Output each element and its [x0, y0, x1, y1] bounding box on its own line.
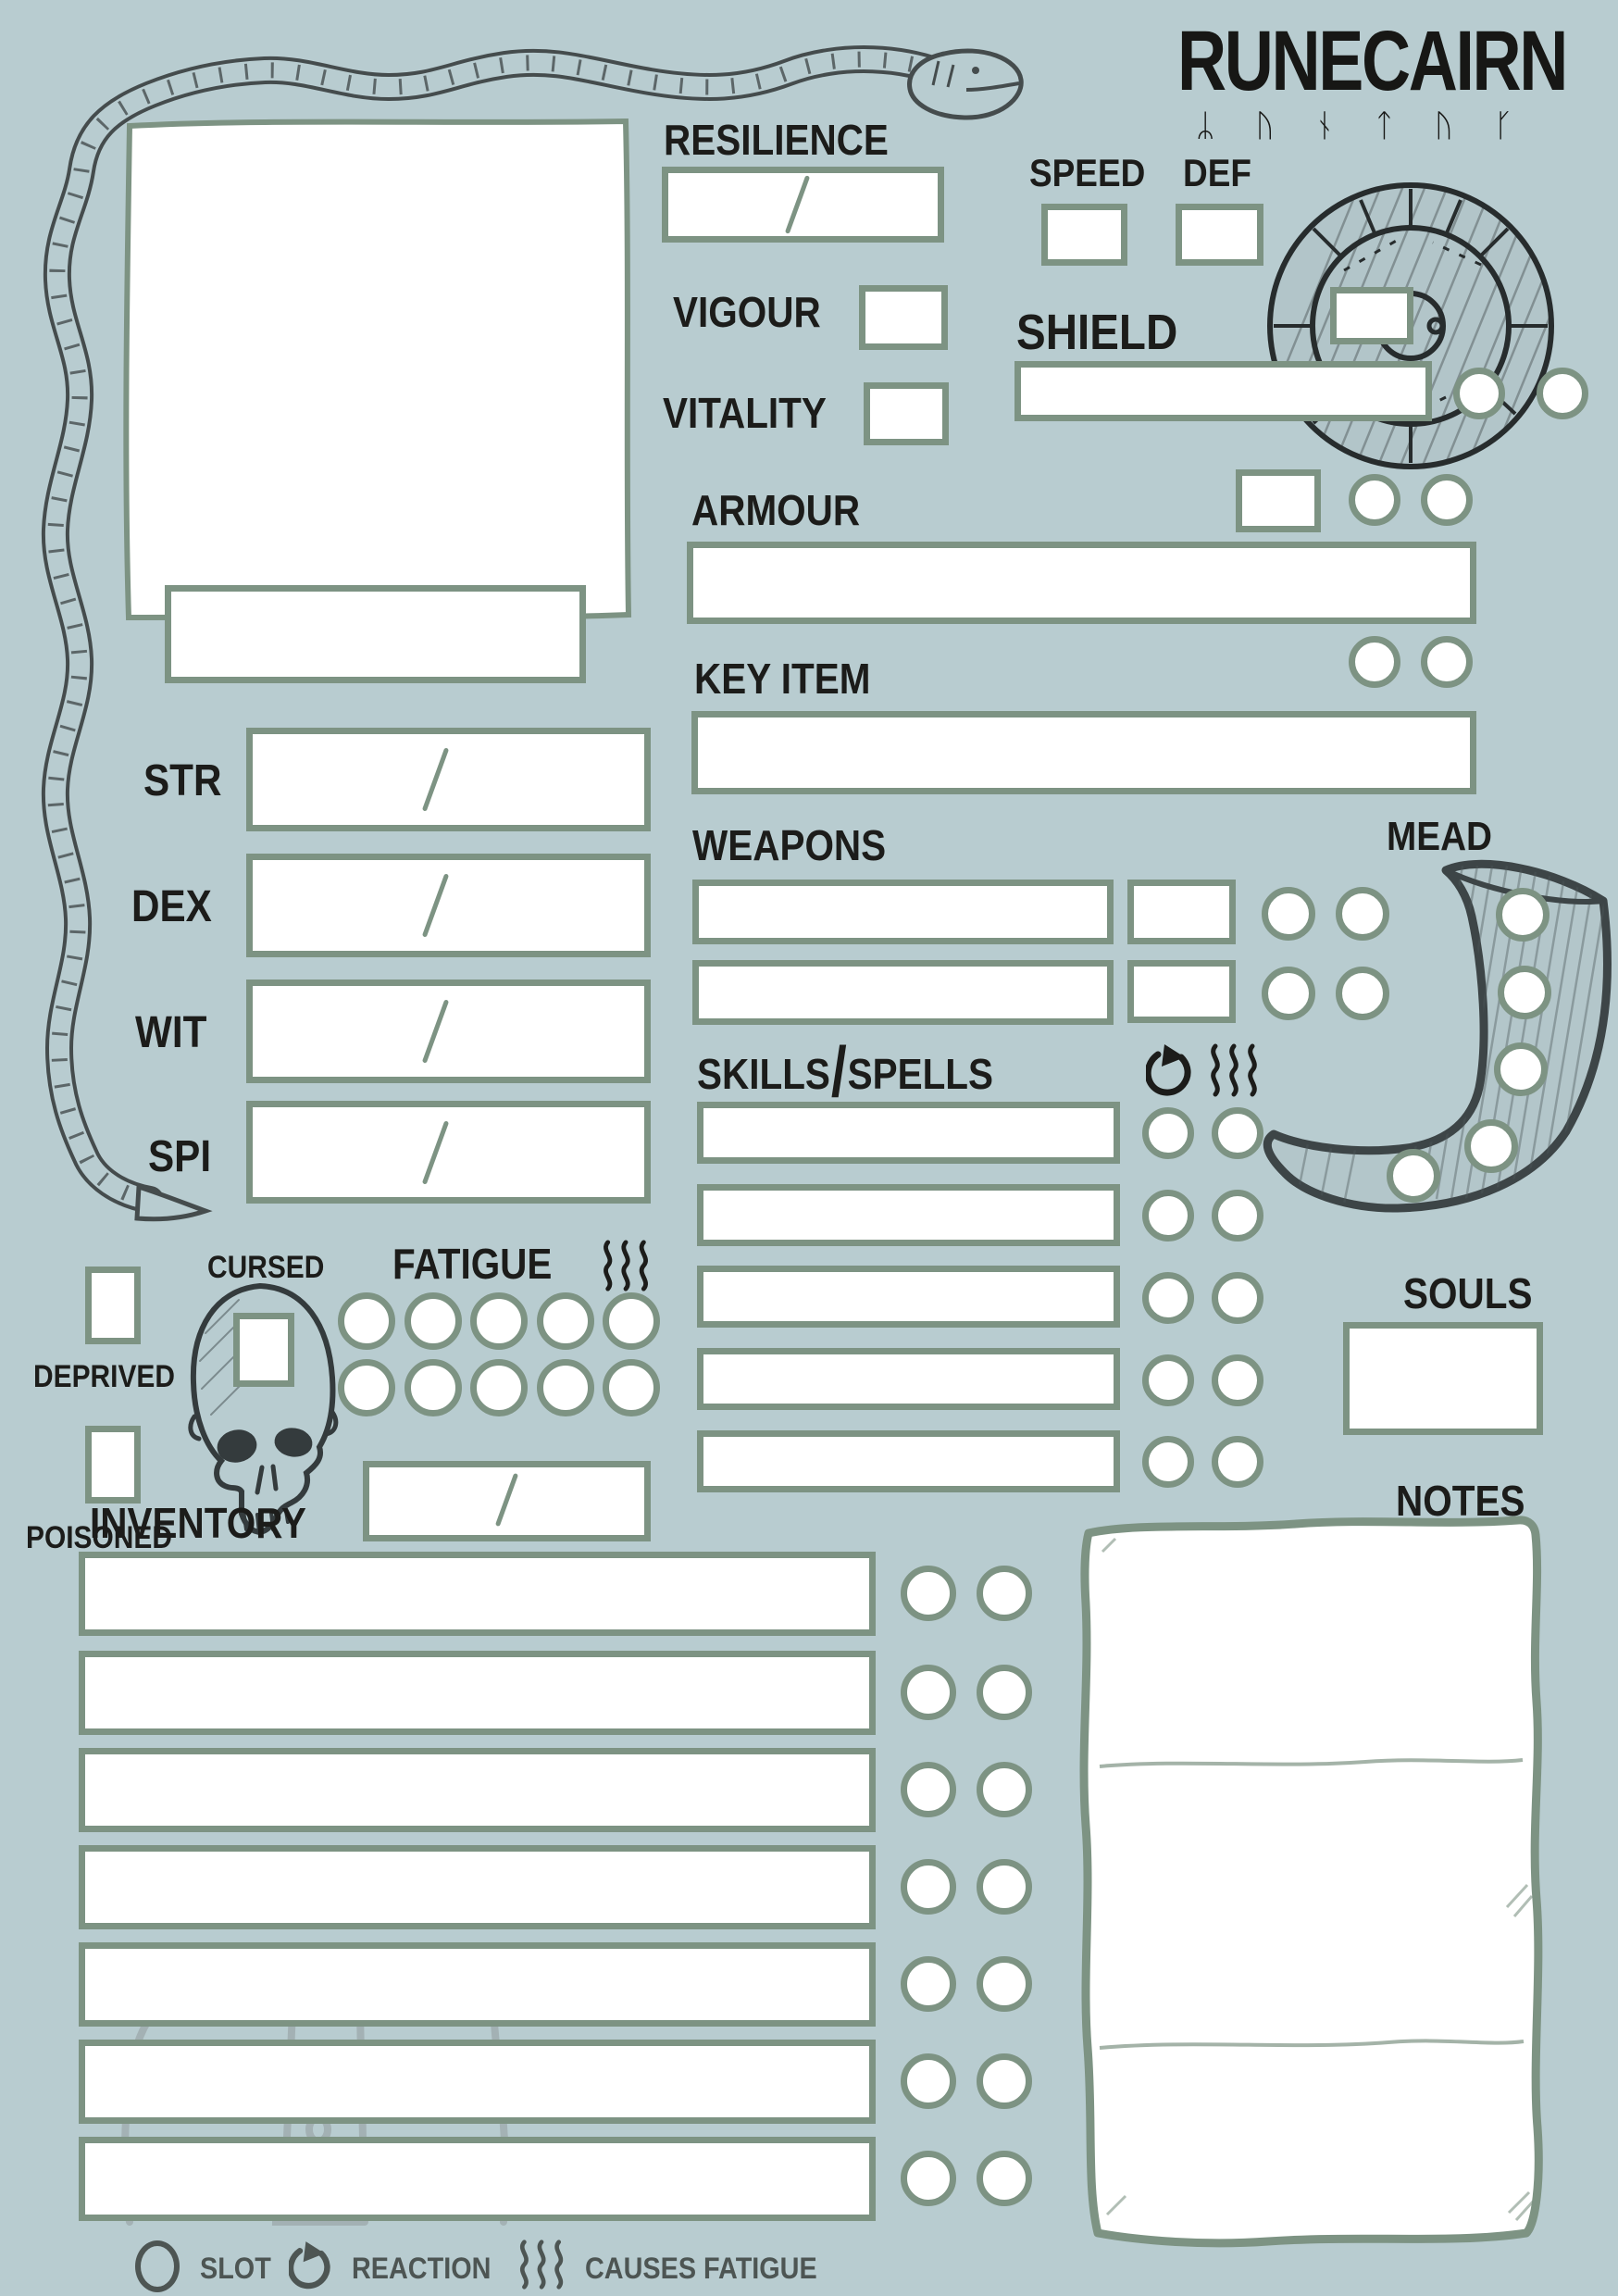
stat-input-dex[interactable]	[246, 854, 651, 957]
inventory-slot-circle[interactable]	[901, 2151, 956, 2206]
skill-reaction-circle[interactable]	[1142, 1354, 1194, 1406]
fatigue-slot-circle[interactable]	[603, 1292, 660, 1350]
key-item-input[interactable]	[691, 711, 1476, 794]
armour-slot-circle[interactable]	[1421, 474, 1473, 526]
souls-label: SOULS	[1403, 1272, 1532, 1315]
fatigue-slot-circle[interactable]	[537, 1359, 594, 1416]
weapon-slot-circle[interactable]	[1336, 887, 1389, 941]
slot-legend-icon	[135, 2240, 180, 2292]
inventory-slot-circle[interactable]	[977, 2053, 1032, 2109]
shield-slot-circle[interactable]	[1537, 368, 1588, 419]
resilience-input[interactable]	[662, 167, 944, 243]
inventory-item-input[interactable]	[79, 1845, 876, 1929]
notes-area[interactable]	[1092, 1537, 1527, 2227]
mead-horn-drawing	[1267, 864, 1611, 1213]
fatigue-slot-circle[interactable]	[470, 1292, 528, 1350]
mead-slot-circle[interactable]	[1464, 1119, 1518, 1173]
souls-input[interactable]	[1343, 1322, 1543, 1435]
inventory-slot-circle[interactable]	[977, 1566, 1032, 1621]
resilience-label: RESILIENCE	[664, 119, 889, 161]
stat-input-str[interactable]	[246, 728, 651, 831]
fatigue-slot-circle[interactable]	[603, 1359, 660, 1416]
inventory-slot-circle[interactable]	[901, 1762, 956, 1817]
reaction-icon	[1146, 1042, 1192, 1096]
skill-reaction-circle[interactable]	[1142, 1107, 1194, 1159]
weapon-name-input[interactable]	[692, 960, 1114, 1025]
shield-label: SHIELD	[1016, 307, 1177, 357]
skill-reaction-circle[interactable]	[1142, 1436, 1194, 1488]
speed-input[interactable]	[1041, 204, 1127, 266]
weapon-name-input[interactable]	[692, 880, 1114, 944]
skill-fatigue-circle[interactable]	[1212, 1354, 1263, 1406]
shield-drawing	[1240, 181, 1618, 477]
inventory-slot-circle[interactable]	[901, 1566, 956, 1621]
fatigue-slot-circle[interactable]	[338, 1359, 395, 1416]
inventory-slot-circle[interactable]	[901, 1956, 956, 2012]
portrait-frame	[126, 121, 629, 618]
inventory-slot-circle[interactable]	[901, 1665, 956, 1720]
inventory-item-input[interactable]	[79, 1942, 876, 2027]
vigour-input[interactable]	[859, 285, 948, 350]
inventory-slot-circle[interactable]	[977, 1859, 1032, 1915]
mead-slot-circle[interactable]	[1498, 966, 1551, 1019]
skill-fatigue-circle[interactable]	[1212, 1107, 1263, 1159]
deprived-label: DEPRIVED	[33, 1361, 175, 1392]
deprived-checkbox[interactable]	[85, 1267, 141, 1344]
fatigue-slot-circle[interactable]	[404, 1359, 462, 1416]
cursed-label: CURSED	[207, 1252, 324, 1283]
reaction-icon	[289, 2239, 331, 2290]
weapon-slot-circle[interactable]	[1262, 967, 1315, 1020]
skill-fatigue-circle[interactable]	[1212, 1190, 1263, 1242]
skill-name-input[interactable]	[697, 1102, 1120, 1164]
armour-def-input[interactable]	[1236, 469, 1321, 532]
inventory-slot-circle[interactable]	[977, 1665, 1032, 1720]
skills-slash: /	[831, 1037, 847, 1107]
inventory-slot-circle[interactable]	[901, 2053, 956, 2109]
key-item-label: KEY ITEM	[694, 657, 870, 700]
weapon-damage-input[interactable]	[1127, 880, 1236, 944]
skill-name-input[interactable]	[697, 1266, 1120, 1328]
mead-slot-circle[interactable]	[1387, 1149, 1440, 1203]
weapon-slot-circle[interactable]	[1262, 887, 1315, 941]
weapon-damage-input[interactable]	[1127, 960, 1236, 1023]
stat-input-wit[interactable]	[246, 980, 651, 1083]
key-item-slot-circle[interactable]	[1421, 636, 1473, 688]
vitality-input[interactable]	[864, 382, 949, 445]
inventory-item-input[interactable]	[79, 1748, 876, 1832]
mead-slot-circle[interactable]	[1496, 888, 1550, 942]
armour-name-input[interactable]	[687, 542, 1476, 624]
shield-slot-circle[interactable]	[1453, 368, 1505, 419]
character-sheet: RUNECAIRN ᛦᚢᚾᛏᚢᚴ RESILIENCE SPEED DEF VI…	[0, 0, 1618, 2296]
skill-reaction-circle[interactable]	[1142, 1190, 1194, 1242]
stat-input-spi[interactable]	[246, 1101, 651, 1204]
inventory-label: INVENTORY	[90, 1502, 306, 1544]
inventory-item-input[interactable]	[79, 1552, 876, 1636]
inventory-slot-circle[interactable]	[977, 2151, 1032, 2206]
skill-fatigue-circle[interactable]	[1212, 1436, 1263, 1488]
causes-fatigue-icon	[598, 1239, 655, 1292]
stat-label-wit: WIT	[135, 1011, 206, 1055]
shield-def-input[interactable]	[1330, 287, 1413, 344]
skills-spells-label: SKILLS/SPELLS	[697, 1035, 993, 1099]
skill-reaction-circle[interactable]	[1142, 1272, 1194, 1324]
speed-label: SPEED	[1029, 154, 1145, 193]
causes-fatigue-icon	[515, 2239, 570, 2290]
logo-runes: ᛦᚢᚾᛏᚢᚴ	[1196, 107, 1553, 144]
def-input[interactable]	[1176, 204, 1263, 266]
skill-name-input[interactable]	[697, 1184, 1120, 1246]
armour-label: ARMOUR	[691, 489, 860, 531]
mead-label: MEAD	[1387, 817, 1492, 857]
weapon-slot-circle[interactable]	[1336, 967, 1389, 1020]
causes-fatigue-legend-label: CAUSES FATIGUE	[585, 2253, 817, 2283]
inventory-slot-circle[interactable]	[977, 1762, 1032, 1817]
skill-name-input[interactable]	[697, 1430, 1120, 1492]
stat-label-spi: SPI	[148, 1135, 211, 1179]
vigour-label: VIGOUR	[673, 291, 821, 333]
game-logo: RUNECAIRN	[1177, 13, 1566, 110]
character-name-input[interactable]	[165, 585, 586, 683]
shield-name-input[interactable]	[1014, 361, 1432, 421]
inventory-item-input[interactable]	[79, 2040, 876, 2124]
fatigue-slot-circle[interactable]	[470, 1359, 528, 1416]
causes-fatigue-icon	[1206, 1042, 1263, 1098]
fatigue-slot-circle[interactable]	[537, 1292, 594, 1350]
fatigue-slot-circle[interactable]	[404, 1292, 462, 1350]
inventory-item-input[interactable]	[79, 1651, 876, 1735]
mead-slot-circle[interactable]	[1494, 1042, 1548, 1096]
slot-legend-label: SLOT	[200, 2253, 271, 2283]
fatigue-label: FATIGUE	[392, 1242, 552, 1285]
poisoned-checkbox[interactable]	[85, 1426, 141, 1504]
stat-label-str: STR	[143, 759, 221, 804]
def-label: DEF	[1183, 154, 1251, 193]
armour-slot-circle[interactable]	[1349, 474, 1400, 526]
cursed-checkbox[interactable]	[233, 1313, 294, 1387]
inventory-slot-circle[interactable]	[901, 1859, 956, 1915]
inventory-slot-circle[interactable]	[977, 1956, 1032, 2012]
weapons-label: WEAPONS	[692, 824, 886, 867]
key-item-slot-circle[interactable]	[1349, 636, 1400, 688]
vitality-label: VITALITY	[663, 392, 827, 434]
skill-name-input[interactable]	[697, 1348, 1120, 1410]
fatigue-slot-circle[interactable]	[338, 1292, 395, 1350]
stat-label-dex: DEX	[131, 885, 212, 930]
inventory-item-input[interactable]	[79, 2137, 876, 2221]
reaction-legend-label: REACTION	[352, 2253, 491, 2283]
notes-label: NOTES	[1396, 1479, 1525, 1522]
skill-fatigue-circle[interactable]	[1212, 1272, 1263, 1324]
